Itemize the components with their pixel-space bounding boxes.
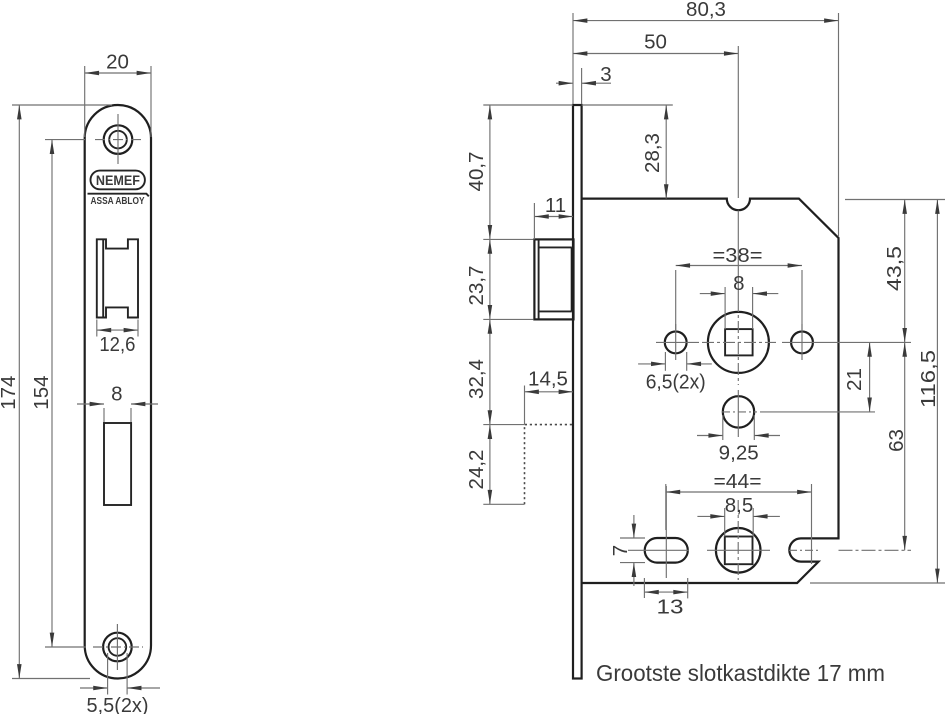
svg-text:28,3: 28,3: [641, 133, 664, 173]
svg-text:40,7: 40,7: [465, 152, 488, 192]
svg-text:14,5: 14,5: [528, 368, 568, 391]
svg-text:7: 7: [609, 545, 632, 556]
svg-text:13: 13: [657, 596, 684, 619]
svg-text:43,5: 43,5: [883, 246, 906, 291]
svg-text:6,5(2x): 6,5(2x): [646, 371, 706, 394]
svg-text:50: 50: [644, 31, 667, 54]
svg-text:8: 8: [733, 272, 744, 295]
svg-text:116,5: 116,5: [917, 350, 940, 408]
svg-text:3: 3: [600, 63, 611, 86]
svg-text:Grootste slotkastdikte 17 mm: Grootste slotkastdikte 17 mm: [596, 660, 885, 686]
svg-text:24,2: 24,2: [465, 450, 488, 490]
svg-text:23,7: 23,7: [465, 266, 488, 306]
svg-text:8,5: 8,5: [725, 494, 754, 517]
svg-text:154: 154: [30, 375, 53, 409]
svg-text:174: 174: [0, 376, 20, 410]
svg-text:=38=: =38=: [713, 244, 763, 267]
svg-text:8: 8: [111, 383, 122, 406]
svg-text:=44=: =44=: [714, 470, 762, 493]
svg-text:63: 63: [885, 429, 908, 452]
svg-text:ASSA ABLOY: ASSA ABLOY: [91, 195, 145, 207]
svg-text:20: 20: [106, 51, 129, 74]
svg-text:11: 11: [545, 194, 566, 217]
svg-text:5,5(2x): 5,5(2x): [87, 694, 149, 714]
svg-text:32,4: 32,4: [465, 359, 488, 399]
svg-text:21: 21: [843, 368, 866, 391]
svg-text:80,3: 80,3: [686, 0, 726, 21]
svg-text:NEMEF: NEMEF: [96, 172, 140, 188]
svg-text:12,6: 12,6: [99, 333, 135, 356]
svg-text:9,25: 9,25: [719, 442, 759, 465]
